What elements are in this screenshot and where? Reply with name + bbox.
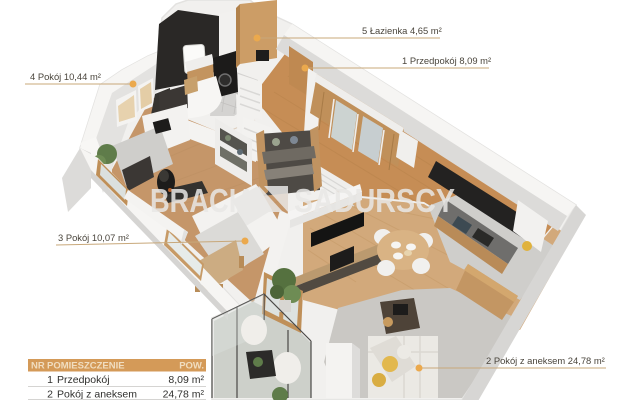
svg-text:BRACIA: BRACIA <box>150 182 256 219</box>
svg-text:3 Pokój 10,07 m²: 3 Pokój 10,07 m² <box>58 232 129 243</box>
svg-text:2 Pokój z aneksem 24,78 m²: 2 Pokój z aneksem 24,78 m² <box>486 355 605 366</box>
svg-text:NR: NR <box>31 361 45 372</box>
svg-text:4 Pokój 10,44 m²: 4 Pokój 10,44 m² <box>30 71 101 82</box>
svg-text:1: 1 <box>47 374 53 386</box>
svg-text:POMIESZCZENIE: POMIESZCZENIE <box>47 361 125 372</box>
svg-text:Przedpokój: Przedpokój <box>57 374 110 386</box>
svg-text:24,78 m²: 24,78 m² <box>163 389 205 400</box>
svg-text:5 Łazienka 4,65 m²: 5 Łazienka 4,65 m² <box>362 25 442 36</box>
svg-text:8,09 m²: 8,09 m² <box>168 374 204 386</box>
svg-text:Pokój z aneksem: Pokój z aneksem <box>57 389 137 400</box>
svg-text:1 Przedpokój 8,09 m²: 1 Przedpokój 8,09 m² <box>402 55 491 66</box>
svg-text:POW.: POW. <box>179 361 204 372</box>
svg-text:SADURSCY: SADURSCY <box>294 182 455 219</box>
svg-text:2: 2 <box>47 389 53 400</box>
